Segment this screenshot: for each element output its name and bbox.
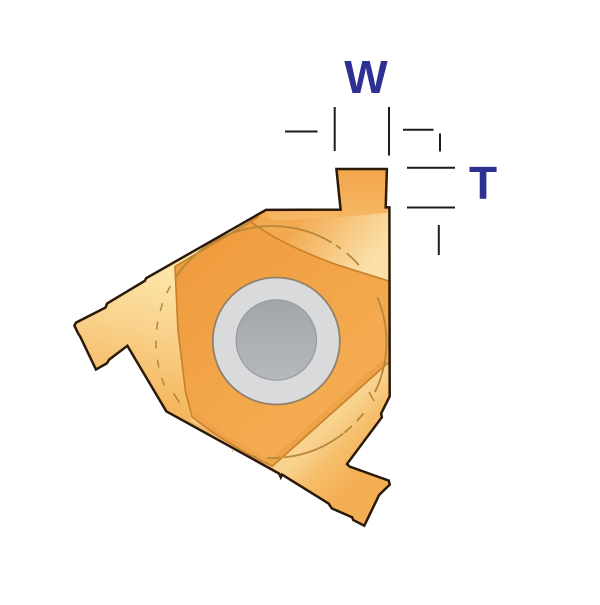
svg-text:T: T [469,157,497,209]
svg-text:W: W [344,51,388,103]
